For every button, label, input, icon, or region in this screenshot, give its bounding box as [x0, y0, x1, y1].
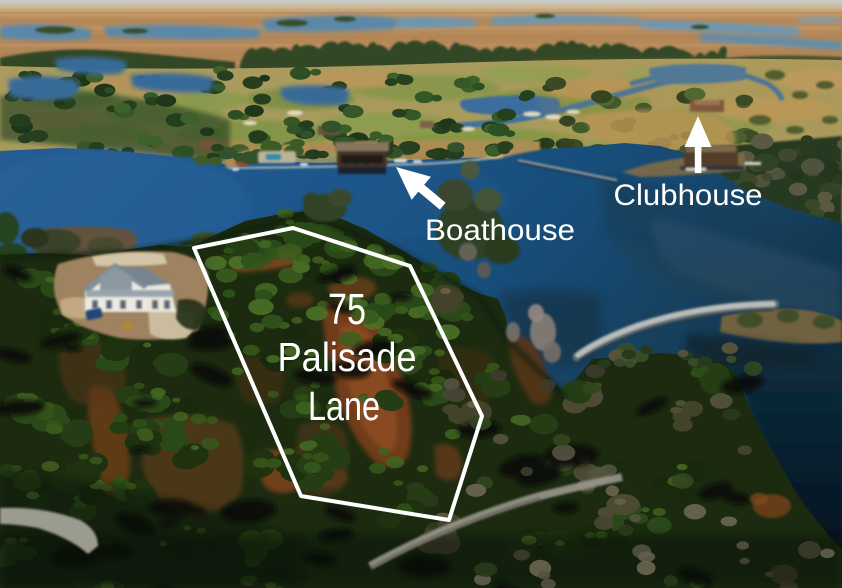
svg-text:Clubhouse: Clubhouse: [614, 179, 763, 212]
svg-text:Palisade: Palisade: [278, 334, 417, 380]
svg-text:75: 75: [328, 285, 366, 334]
svg-text:Lane: Lane: [308, 383, 380, 429]
svg-text:Boathouse: Boathouse: [425, 214, 575, 247]
